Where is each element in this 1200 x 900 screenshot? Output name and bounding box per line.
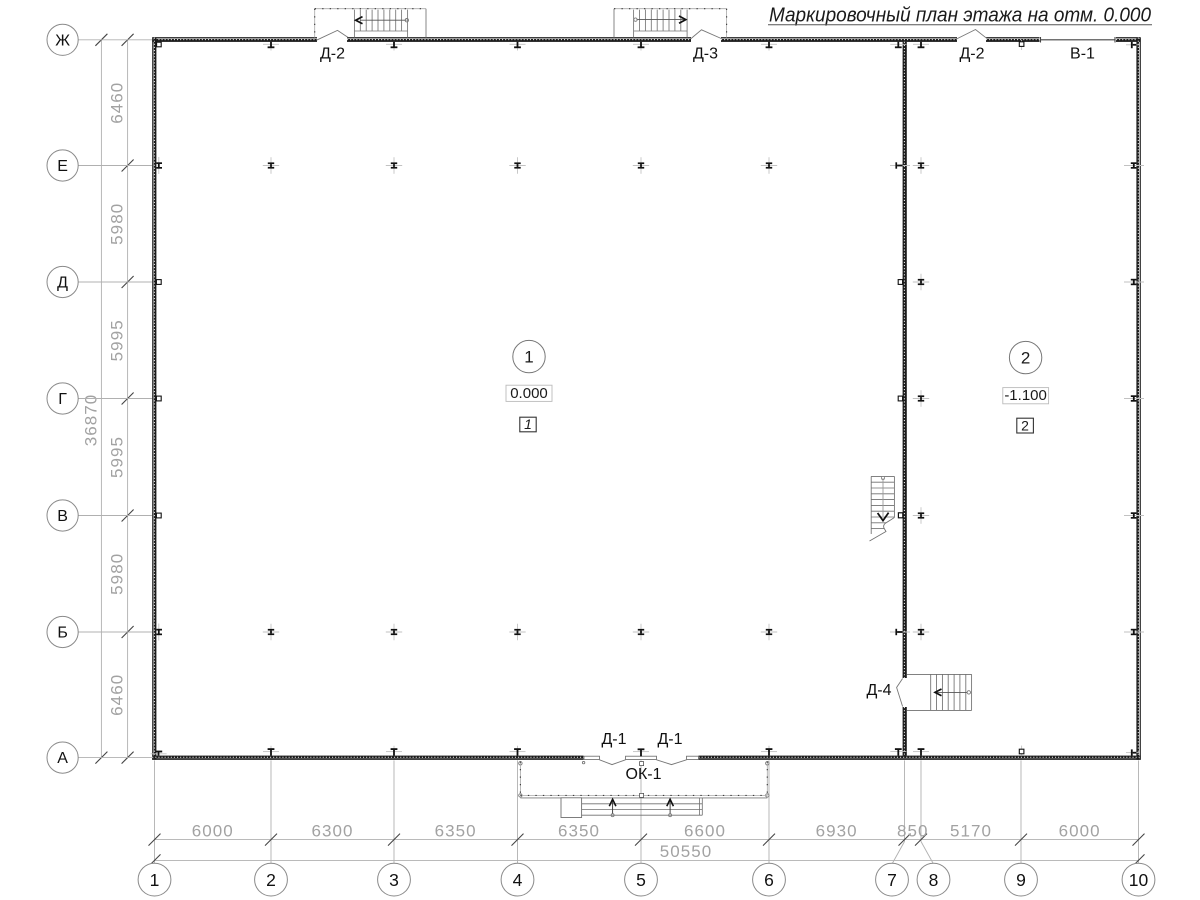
svg-text:2: 2 xyxy=(1021,417,1029,433)
svg-text:-1.100: -1.100 xyxy=(1004,387,1047,404)
svg-text:7: 7 xyxy=(887,870,897,890)
svg-text:Д-3: Д-3 xyxy=(693,45,718,62)
svg-text:36870: 36870 xyxy=(82,394,101,447)
svg-text:50550: 50550 xyxy=(660,842,713,861)
svg-text:1: 1 xyxy=(524,416,532,432)
svg-text:6350: 6350 xyxy=(558,822,600,841)
svg-text:5995: 5995 xyxy=(107,436,126,478)
svg-text:Д: Д xyxy=(57,275,68,292)
svg-text:В-1: В-1 xyxy=(1070,45,1095,62)
svg-text:10: 10 xyxy=(1129,870,1149,890)
svg-text:8: 8 xyxy=(929,870,939,890)
svg-text:Д-4: Д-4 xyxy=(866,682,891,699)
svg-text:6000: 6000 xyxy=(192,822,234,841)
svg-text:1: 1 xyxy=(524,348,533,367)
svg-text:Д-1: Д-1 xyxy=(601,731,626,748)
svg-text:ОК-1: ОК-1 xyxy=(626,766,662,783)
svg-text:2: 2 xyxy=(1021,349,1030,368)
svg-text:5170: 5170 xyxy=(950,822,992,841)
svg-text:Б: Б xyxy=(57,625,68,642)
svg-text:5995: 5995 xyxy=(107,319,126,361)
svg-text:6460: 6460 xyxy=(107,674,126,716)
svg-text:5980: 5980 xyxy=(107,553,126,595)
svg-text:Г: Г xyxy=(58,391,67,408)
svg-text:5980: 5980 xyxy=(107,203,126,245)
svg-text:1: 1 xyxy=(150,870,160,890)
svg-text:Д-2: Д-2 xyxy=(320,45,345,62)
svg-text:6: 6 xyxy=(764,870,774,890)
svg-text:6350: 6350 xyxy=(435,822,477,841)
svg-text:В: В xyxy=(57,508,68,525)
svg-text:А: А xyxy=(57,750,68,767)
svg-text:Д-2: Д-2 xyxy=(959,45,984,62)
svg-text:850: 850 xyxy=(897,822,929,841)
svg-text:9: 9 xyxy=(1016,870,1026,890)
svg-text:2: 2 xyxy=(266,870,276,890)
svg-text:6300: 6300 xyxy=(311,822,353,841)
svg-text:Е: Е xyxy=(57,158,68,175)
svg-text:4: 4 xyxy=(513,870,523,890)
svg-text:6600: 6600 xyxy=(684,822,726,841)
svg-text:0.000: 0.000 xyxy=(510,385,548,402)
svg-text:6930: 6930 xyxy=(816,822,858,841)
svg-text:3: 3 xyxy=(389,870,399,890)
svg-text:6000: 6000 xyxy=(1059,822,1101,841)
svg-text:Д-1: Д-1 xyxy=(657,731,682,748)
svg-text:5: 5 xyxy=(636,870,646,890)
svg-text:Маркировочный план этажа на от: Маркировочный план этажа на отм. 0.000 xyxy=(769,4,1152,27)
svg-text:Ж: Ж xyxy=(55,32,70,49)
svg-text:6460: 6460 xyxy=(107,82,126,124)
